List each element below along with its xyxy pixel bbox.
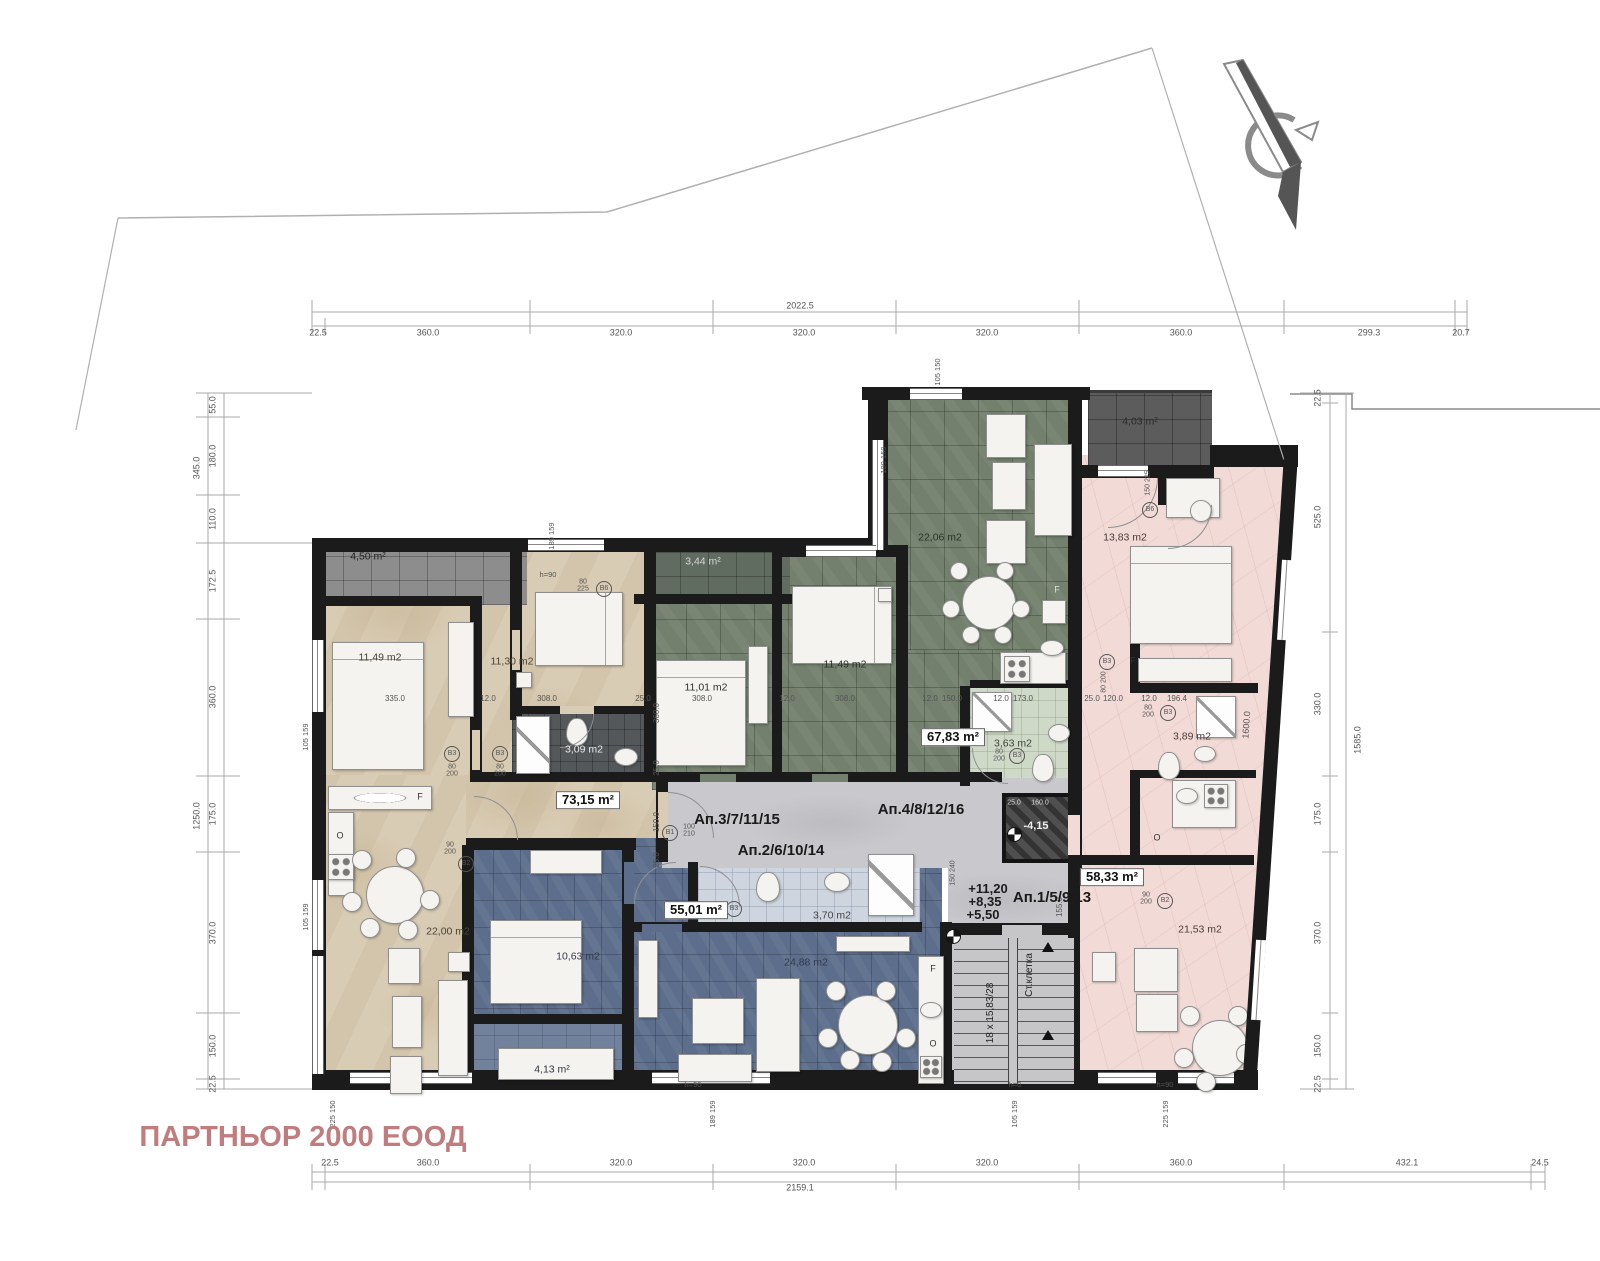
window [312, 880, 324, 950]
plan-label: 110.0 [208, 508, 217, 530]
plan-label: 370.0 [208, 922, 217, 945]
chair [420, 890, 440, 910]
stove [1004, 656, 1030, 682]
plan-label: 172.5 [208, 570, 217, 593]
plan-label: 22.5 [309, 328, 327, 337]
coffee-table [692, 998, 744, 1044]
nightstand [878, 588, 892, 602]
plan-label: 320.0 [793, 328, 816, 337]
elevation-marker-icon [1007, 827, 1022, 842]
toilet [1158, 752, 1180, 780]
plan-label: 225 159 [1162, 1100, 1170, 1127]
side-table [448, 952, 470, 972]
chair [1012, 600, 1030, 618]
armchair [986, 520, 1026, 564]
chair [1236, 1044, 1256, 1064]
door-gap [1068, 815, 1080, 855]
chair [840, 1050, 860, 1070]
plan-label: 360.0 [208, 686, 217, 709]
plan-label: 345.0 [192, 457, 201, 480]
sink-basin [920, 1002, 942, 1018]
bed [332, 642, 424, 770]
stove [1204, 784, 1228, 808]
nightstand [516, 672, 532, 688]
wall [634, 594, 792, 604]
chair [872, 1052, 892, 1072]
window [1098, 1072, 1156, 1084]
chair [826, 981, 846, 1001]
stair-direction-arrow [1042, 942, 1054, 952]
stair-direction-arrow [1042, 1030, 1054, 1040]
armchair [388, 948, 420, 984]
window [806, 545, 876, 557]
door-gap [512, 630, 520, 670]
chair [818, 1028, 838, 1048]
sink-basin [1040, 640, 1064, 656]
wall [688, 862, 698, 928]
stove [328, 854, 354, 880]
toilet [1032, 754, 1054, 782]
door-gap [472, 730, 480, 770]
wall [1078, 855, 1254, 865]
plan-label: 299.3 [1358, 328, 1381, 337]
armchair [390, 1056, 422, 1094]
wall [1130, 770, 1256, 778]
sofa [1034, 444, 1072, 536]
window [872, 440, 884, 550]
chair [1180, 1006, 1200, 1026]
armchair [1136, 994, 1178, 1032]
tv-stand [1092, 952, 1116, 982]
wall [960, 686, 970, 786]
stove [920, 1056, 942, 1078]
wardrobe [836, 936, 910, 952]
sink-basin [1048, 724, 1070, 742]
sink-basin [614, 748, 638, 766]
shower [1196, 696, 1236, 738]
plan-label: 320.0 [610, 1158, 633, 1167]
sink-basin [1194, 746, 1216, 762]
plan-label: 22.5 [321, 1158, 339, 1167]
plan-label: 150.0 [1313, 1035, 1322, 1058]
plan-label: 1250.0 [192, 802, 201, 830]
plan-label: 225 150 [329, 1100, 337, 1127]
bed [535, 592, 623, 666]
wardrobe [1138, 658, 1232, 682]
plan-label: 360.0 [1170, 1158, 1193, 1167]
plan-label: 360.0 [417, 328, 440, 337]
dining-table [962, 576, 1016, 630]
window [312, 640, 324, 712]
plan-label: 105 159 [302, 903, 310, 930]
door-gap [624, 862, 634, 904]
wall [862, 387, 1090, 400]
sink-basin [824, 872, 850, 892]
armchair [392, 996, 422, 1048]
terrace-bench [498, 1048, 614, 1080]
chair [1228, 1006, 1248, 1026]
plan-label: 2022.5 [786, 301, 814, 310]
tv-stand [638, 940, 658, 1018]
plan-label: 20.7 [1452, 328, 1470, 337]
wall [1130, 778, 1140, 860]
wall [896, 545, 908, 777]
elevation-marker-icon [946, 929, 961, 944]
wardrobe [530, 850, 602, 874]
company-name: ПАРТНЬОР 2000 ЕООД [139, 1122, 466, 1152]
chair [352, 850, 372, 870]
shower [516, 716, 550, 774]
apt1-terrace [1088, 390, 1212, 468]
plan-label: 360.0 [1170, 328, 1193, 337]
plan-label: 320.0 [610, 328, 633, 337]
plan-label: 320.0 [976, 1158, 999, 1167]
plan-label: 175.0 [1313, 803, 1322, 826]
sofa [1134, 948, 1178, 992]
sofa [678, 1054, 752, 1082]
dining-table [366, 866, 424, 924]
chair [876, 981, 896, 1001]
chair [1196, 1072, 1216, 1092]
bed [792, 586, 892, 664]
plan-label: 55.0 [208, 396, 217, 414]
shower [868, 854, 914, 916]
plan-label: 105 159 [302, 723, 310, 750]
chair [360, 918, 380, 938]
wall [466, 1014, 634, 1024]
parcel-boundary [1290, 394, 1600, 409]
plan-label: 180.0 [208, 445, 217, 468]
bed [1130, 546, 1232, 644]
wall [1210, 445, 1298, 467]
plan-label: 105 159 [1011, 1100, 1019, 1127]
plan-label: 320.0 [793, 1158, 816, 1167]
plan-label: 22.5 [208, 1075, 217, 1093]
sink-basin [1176, 788, 1198, 804]
toilet [756, 872, 780, 902]
fridge [1042, 600, 1066, 624]
sofa [438, 980, 468, 1076]
wall [1130, 683, 1258, 693]
door-gap [1002, 925, 1042, 937]
plan-label: 1585.0 [1353, 726, 1362, 754]
chair [396, 848, 416, 868]
plan-label: 330.0 [1313, 693, 1322, 716]
armchair [992, 462, 1026, 510]
armchair [986, 414, 1026, 458]
plan-label: 105 150 [934, 358, 942, 385]
chair [896, 1028, 916, 1048]
chair [942, 600, 960, 618]
bed [490, 920, 582, 1004]
plan-label: 432.1 [1396, 1158, 1419, 1167]
site-boundary [76, 218, 118, 430]
window [312, 956, 324, 1074]
wall [772, 550, 782, 778]
chair [994, 626, 1012, 644]
plan-label: 525.0 [1313, 506, 1322, 529]
door-gap [700, 774, 736, 782]
kitchen-counter [328, 786, 432, 810]
sofa [756, 978, 800, 1072]
plan-label: 320.0 [976, 328, 999, 337]
chair [962, 626, 980, 644]
shower [972, 692, 1012, 732]
chair [1174, 1048, 1194, 1068]
window [528, 539, 604, 551]
chair [950, 562, 968, 580]
plan-label: 175.0 [208, 803, 217, 826]
plan-label: 150.0 [208, 1035, 217, 1058]
chair [996, 562, 1014, 580]
stair-stringer [1008, 938, 1018, 1084]
wardrobe [448, 622, 474, 717]
wardrobe [748, 646, 768, 724]
wall [644, 540, 656, 782]
floor-plan: 22.5360.0320.0320.0320.0360.0299.320.720… [0, 0, 1600, 1261]
door-gap [560, 706, 594, 714]
site-boundary [118, 48, 1152, 218]
plan-label: 370.0 [1313, 922, 1322, 945]
bed [656, 660, 746, 766]
wall [312, 596, 482, 606]
chair [398, 920, 418, 940]
plan-label: 24.5 [1531, 1158, 1549, 1167]
dining-table [838, 995, 898, 1055]
north-arrow-icon [1224, 60, 1318, 230]
chair [342, 892, 362, 912]
door-gap [642, 924, 682, 932]
door-gap [812, 774, 848, 782]
plan-label: 360.0 [417, 1158, 440, 1167]
door-gap [658, 792, 668, 838]
window [1098, 465, 1148, 477]
plan-label: 22.5 [1313, 1075, 1322, 1093]
plan-label: 189 159 [709, 1100, 717, 1127]
plan-label: 22.5 [1313, 389, 1322, 407]
plan-label: 2159.1 [786, 1183, 814, 1192]
window [910, 388, 962, 400]
